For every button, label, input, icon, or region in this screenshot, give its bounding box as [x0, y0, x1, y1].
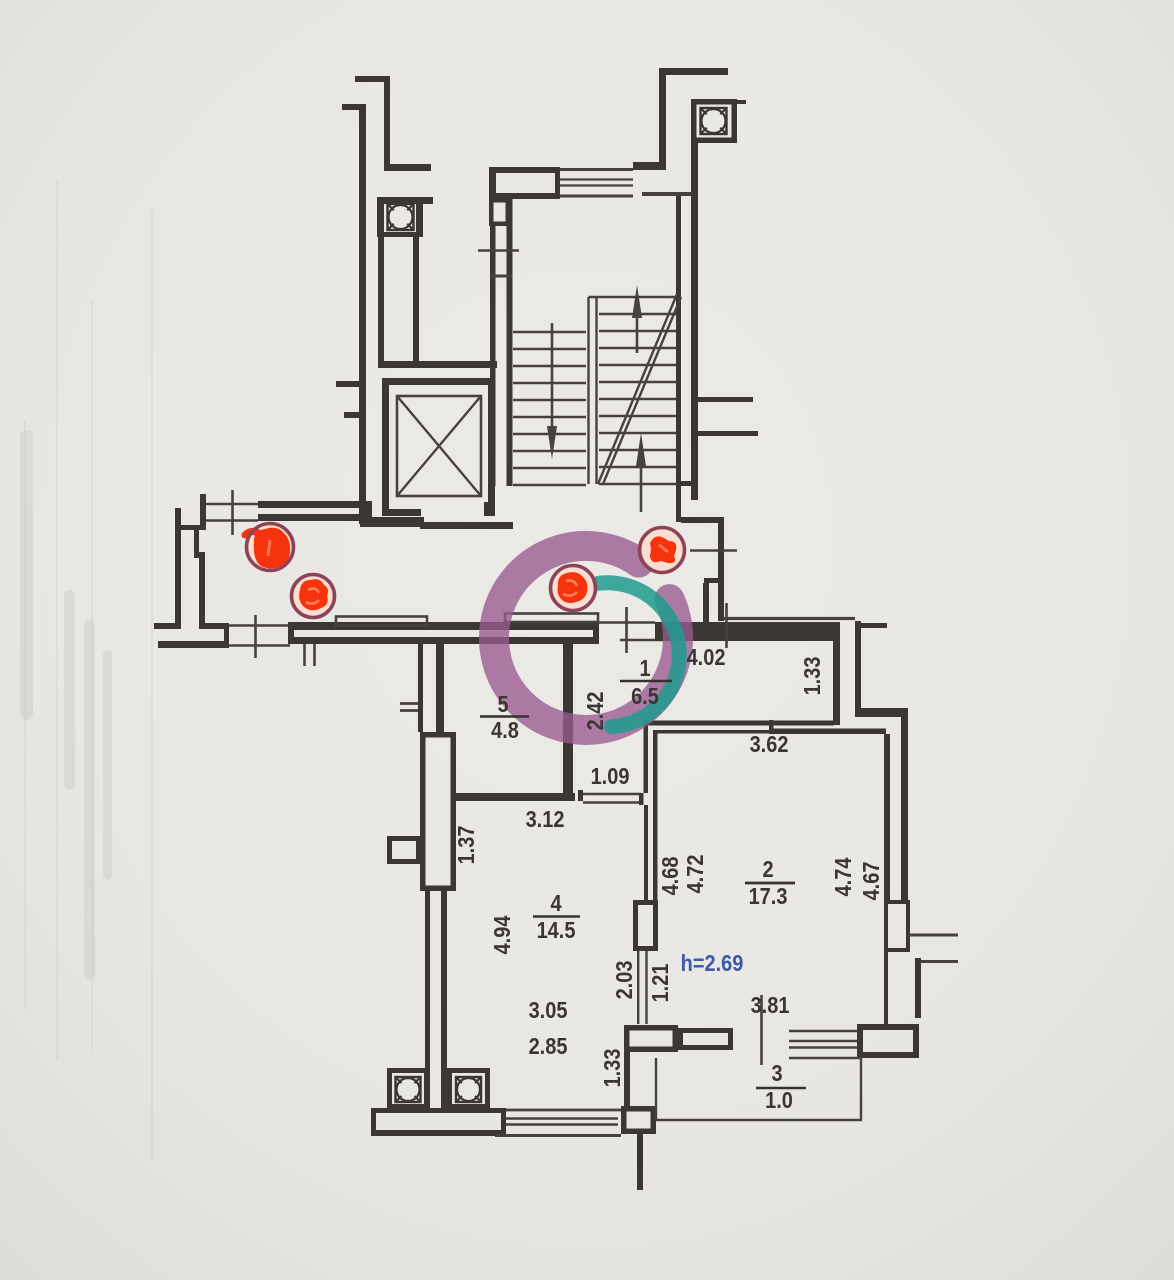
svg-text:4.72: 4.72	[681, 855, 708, 894]
svg-text:1.09: 1.09	[591, 762, 630, 789]
svg-text:4.68: 4.68	[656, 857, 683, 896]
svg-text:3.05: 3.05	[529, 996, 568, 1023]
svg-text:4.94: 4.94	[488, 916, 515, 955]
svg-text:3.12: 3.12	[526, 805, 565, 832]
svg-text:1: 1	[639, 654, 650, 681]
svg-text:h=2.69: h=2.69	[681, 949, 744, 976]
svg-text:1.21: 1.21	[646, 964, 673, 1003]
svg-text:14.5: 14.5	[537, 916, 576, 943]
svg-text:3: 3	[771, 1059, 782, 1086]
svg-text:5: 5	[497, 690, 508, 717]
svg-text:6.5: 6.5	[631, 682, 659, 709]
svg-text:4.8: 4.8	[491, 716, 519, 743]
svg-text:2: 2	[762, 855, 773, 882]
svg-text:4: 4	[550, 889, 561, 916]
svg-text:2.42: 2.42	[581, 692, 608, 731]
svg-text:3.62: 3.62	[750, 730, 789, 757]
svg-text:1.37: 1.37	[452, 826, 479, 865]
svg-text:4.67: 4.67	[857, 862, 884, 901]
svg-text:3.81: 3.81	[751, 991, 790, 1018]
svg-text:2.03: 2.03	[610, 961, 637, 1000]
svg-text:17.3: 17.3	[749, 882, 788, 909]
svg-text:1.33: 1.33	[598, 1049, 625, 1088]
svg-text:4.02: 4.02	[687, 643, 726, 670]
svg-text:2.85: 2.85	[529, 1032, 568, 1059]
svg-text:4.74: 4.74	[829, 858, 856, 897]
svg-text:1.33: 1.33	[798, 657, 825, 696]
svg-text:1.0: 1.0	[765, 1086, 793, 1113]
